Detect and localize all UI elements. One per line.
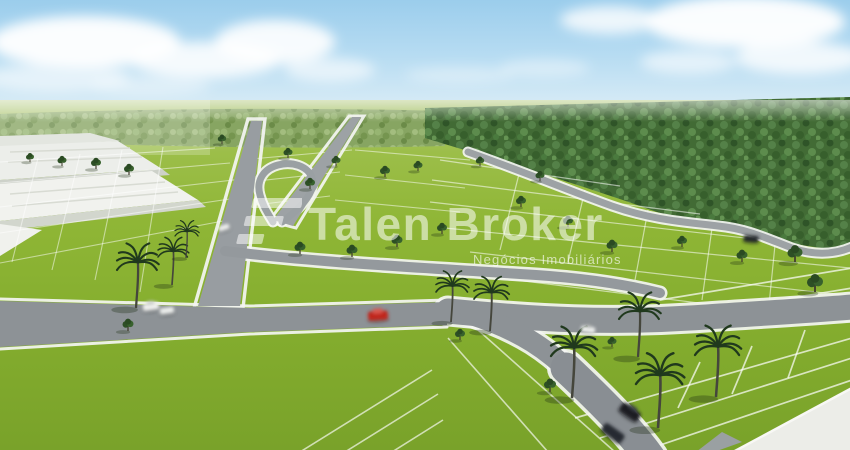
scene-canvas <box>0 0 850 450</box>
subdivision-render-image: Talen Broker Negócios Imobiliários <box>0 0 850 450</box>
